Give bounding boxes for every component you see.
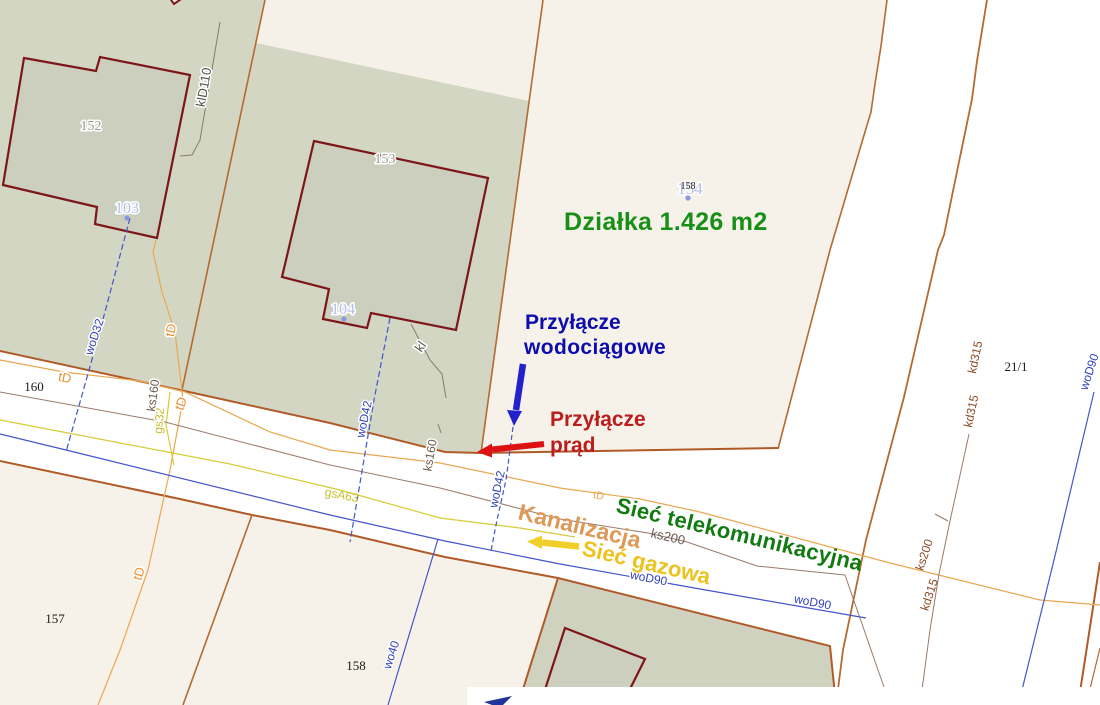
svg-text:tD: tD [592, 489, 605, 503]
svg-text:157: 157 [45, 611, 65, 626]
svg-text:prąd: prąd [550, 434, 596, 457]
svg-text:153: 153 [375, 152, 396, 167]
svg-text:152: 152 [81, 119, 102, 134]
svg-text:wodociągowe: wodociągowe [523, 336, 666, 359]
svg-text:103: 103 [115, 200, 139, 217]
svg-text:158: 158 [681, 181, 696, 192]
svg-text:Przyłącze: Przyłącze [525, 311, 621, 334]
svg-text:160: 160 [24, 379, 44, 394]
svg-text:21/1: 21/1 [1004, 359, 1027, 374]
svg-text:Działka 1.426 m2: Działka 1.426 m2 [564, 208, 768, 236]
svg-text:104: 104 [331, 301, 355, 318]
svg-text:158: 158 [346, 658, 366, 673]
svg-text:Przyłącze: Przyłącze [550, 408, 646, 431]
